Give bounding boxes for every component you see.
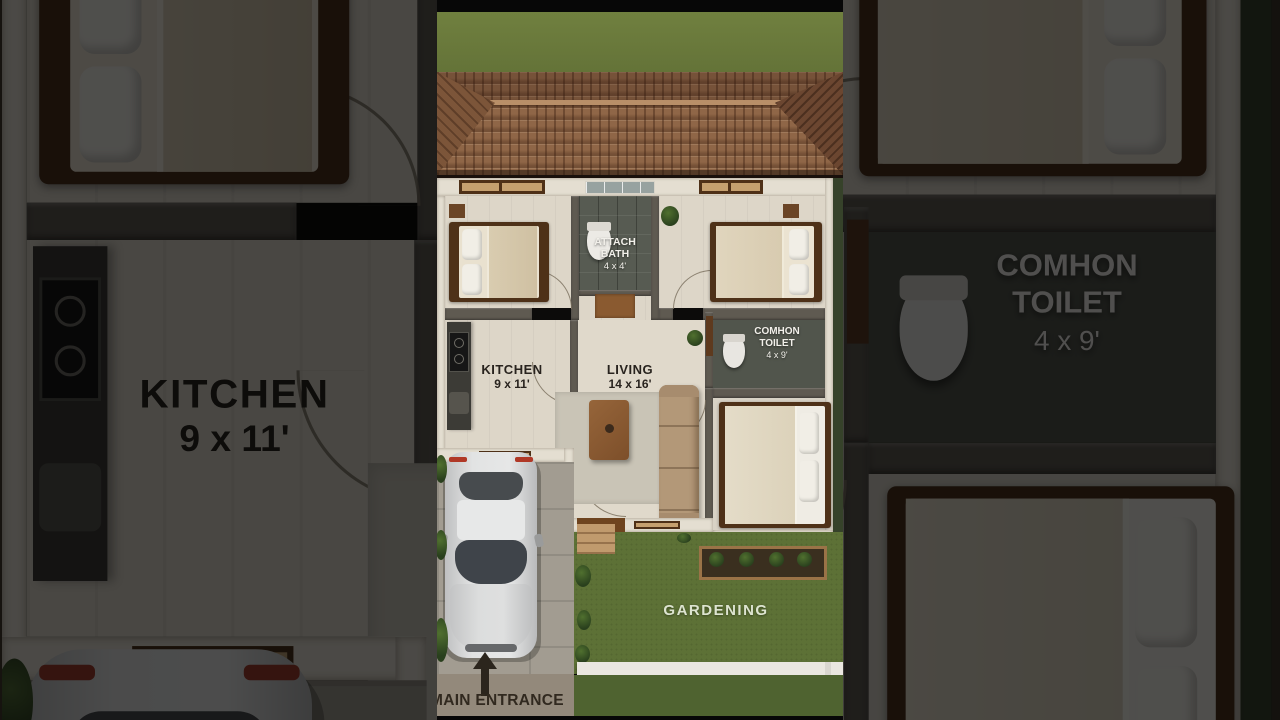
- flower-bed-plant-2: [739, 552, 754, 567]
- bed3-blanket: [906, 499, 1129, 720]
- video-frame: ATTACH BATH 4 x 4' KITCHEN 9 x 11' LIVIN…: [0, 0, 1280, 720]
- garden-grass-below-wall: [574, 675, 843, 716]
- exterior-wall-left: [437, 196, 445, 462]
- living-name: LIVING: [590, 362, 670, 377]
- living-size: 14 x 16': [590, 377, 670, 391]
- letterbox-top: [437, 0, 843, 12]
- living-bottom-window: [634, 521, 680, 529]
- bed1-nightstand: [449, 204, 465, 218]
- bed1-pillow-a: [80, 0, 142, 54]
- wall-bedroom2-bottom-a: [659, 308, 673, 320]
- common-toilet-size: 4 x 9': [741, 350, 813, 361]
- bed3-pillow-a: [1135, 517, 1197, 647]
- bed2-pillow-a: [1104, 0, 1166, 46]
- bed2-blanket: [716, 226, 784, 298]
- lawn-bush-3: [575, 645, 590, 663]
- car-grille: [465, 644, 517, 652]
- flower-bed-plant-1: [709, 552, 724, 567]
- main-entrance-name: MAIN ENTRANCE: [437, 692, 560, 710]
- wall-bath-left: [571, 196, 579, 320]
- toilet-door-panel: [706, 316, 713, 356]
- kitchen-size: 9 x 11': [111, 418, 359, 462]
- kitchen-sink: [449, 392, 469, 414]
- attach-bath-name-line2: BATH: [580, 248, 650, 260]
- gardening-label: GARDENING: [626, 602, 806, 620]
- bed1-blanket: [157, 0, 312, 172]
- entrance-arrow-icon: [473, 652, 497, 669]
- bed1-pillow-b: [462, 264, 482, 295]
- floorplan-scene: ATTACH BATH 4 x 4' KITCHEN 9 x 11' LIVIN…: [437, 0, 843, 720]
- wall-bedroom2-bottom-b: [843, 195, 1216, 232]
- flower-bed-plant-3: [769, 552, 784, 567]
- car-taillight-left: [39, 665, 95, 681]
- coffee-table-bowl: [605, 424, 614, 433]
- exterior-wall-left: [2, 0, 27, 680]
- bed2-blanket: [878, 0, 1089, 164]
- kitchen-stove-burner-b: [55, 345, 86, 376]
- sofa: [659, 385, 699, 525]
- background-zoom-left: ATTACH BATH 4 x 4' KITCHEN 9 x 11' LIVIN…: [0, 0, 437, 720]
- common-toilet-label: COMHON TOILET 4 x 9': [741, 326, 813, 360]
- attach-bath-name-line1: ATTACH: [580, 236, 650, 248]
- side-grass-right: [1241, 0, 1272, 720]
- kitchen-sink: [39, 463, 101, 531]
- attach-bath-size: 4 x 4': [580, 261, 650, 272]
- flower-bed-plant-4: [797, 552, 812, 567]
- common-toilet-label: COMHON TOILET 4 x 9': [955, 251, 1178, 357]
- bed2-nightstand: [783, 204, 799, 218]
- car-windshield: [455, 540, 527, 584]
- wall-bath-right: [651, 196, 659, 320]
- car-rear-window: [70, 711, 268, 720]
- bed3-pillow-a: [799, 412, 819, 454]
- bed2-pillow-b: [789, 264, 809, 295]
- side-grass-right: [833, 178, 843, 532]
- bed2-pillow-a: [789, 229, 809, 260]
- floorplan-scene: ATTACH BATH 4 x 4' KITCHEN 9 x 11' LIVIN…: [843, 0, 1272, 720]
- bedroom2-plant: [661, 206, 679, 226]
- kitchen-label: KITCHEN 9 x 11': [472, 362, 552, 391]
- bedroom2-window-divider: [728, 181, 731, 193]
- bed3-blanket: [725, 406, 797, 524]
- wall-toilet-bedroom3: [713, 388, 825, 398]
- kitchen-size: 9 x 11': [472, 377, 552, 391]
- hallway-wood-mat: [595, 294, 635, 318]
- car-body: [27, 649, 312, 720]
- garden-wall: [577, 662, 843, 675]
- bedroom1-window: [459, 180, 545, 194]
- entrance-steps: [577, 524, 615, 554]
- kitchen-name: KITCHEN: [111, 370, 359, 418]
- bed1-pillow-a: [462, 229, 482, 260]
- kitchen-name: KITCHEN: [472, 362, 552, 377]
- backyard-grass: [437, 12, 843, 72]
- living-label: LIVING 14 x 16': [590, 362, 670, 391]
- gardening-name: GARDENING: [626, 602, 806, 620]
- roof-eave-shadow: [437, 170, 843, 178]
- car-hood: [450, 584, 532, 650]
- bed3-pillow-b: [1135, 666, 1197, 720]
- lawn-bush-4: [677, 533, 691, 543]
- attach-bath-toilet-tank: [587, 222, 611, 231]
- car-roof: [457, 500, 525, 540]
- attach-bath-label: ATTACH BATH 4 x 4': [580, 236, 650, 272]
- roof-ridge: [479, 100, 783, 105]
- letterbox-bottom: [437, 716, 843, 720]
- car-rear-window: [459, 472, 523, 500]
- kitchen-stove-burner-b: [454, 354, 464, 364]
- bath-glass-window: [585, 181, 655, 194]
- bed3-pillow-b: [799, 460, 819, 502]
- bed1-blanket: [487, 226, 537, 298]
- background-zoom-right: ATTACH BATH 4 x 4' KITCHEN 9 x 11' LIVIN…: [843, 0, 1280, 720]
- bedroom2-window: [699, 180, 763, 194]
- lawn-bush-1: [575, 565, 591, 587]
- common-toilet-name-line2: TOILET: [955, 287, 1178, 324]
- common-toilet-size: 4 x 9': [955, 324, 1178, 357]
- car-taillight-left: [449, 457, 467, 462]
- bed2-pillow-b: [1104, 58, 1166, 154]
- lawn-bush-2: [577, 610, 591, 630]
- wall-bedroom1-bottom: [445, 308, 532, 320]
- bed1-pillow-b: [80, 66, 142, 162]
- wall-toilet-bedroom3: [869, 443, 1216, 474]
- kitchen-stove-burner-a: [55, 296, 86, 327]
- bedroom1-window-divider: [499, 181, 502, 193]
- floorplan-scene: ATTACH BATH 4 x 4' KITCHEN 9 x 11' LIVIN…: [2, 0, 437, 720]
- common-toilet-name-line1: COMHON: [955, 251, 1178, 288]
- wall-living-bedroom3: [844, 443, 869, 720]
- car-taillight-right: [244, 665, 300, 681]
- toilet-door-panel: [847, 220, 869, 344]
- common-toilet-name-line2: TOILET: [741, 338, 813, 350]
- wall-bedroom2-bottom-b: [703, 308, 825, 320]
- floorplan-main-view: ATTACH BATH 4 x 4' KITCHEN 9 x 11' LIVIN…: [437, 0, 843, 720]
- wall-bedroom1-bottom: [27, 203, 297, 240]
- common-toilet-name-line1: COMHON: [741, 326, 813, 338]
- living-plant: [687, 330, 703, 346]
- car-taillight-right: [515, 457, 533, 462]
- kitchen-label: KITCHEN 9 x 11': [111, 370, 359, 461]
- kitchen-stove-burner-a: [454, 338, 464, 348]
- main-entrance-label: MAIN ENTRANCE: [437, 692, 560, 710]
- wall-living-bedroom3: [705, 388, 713, 530]
